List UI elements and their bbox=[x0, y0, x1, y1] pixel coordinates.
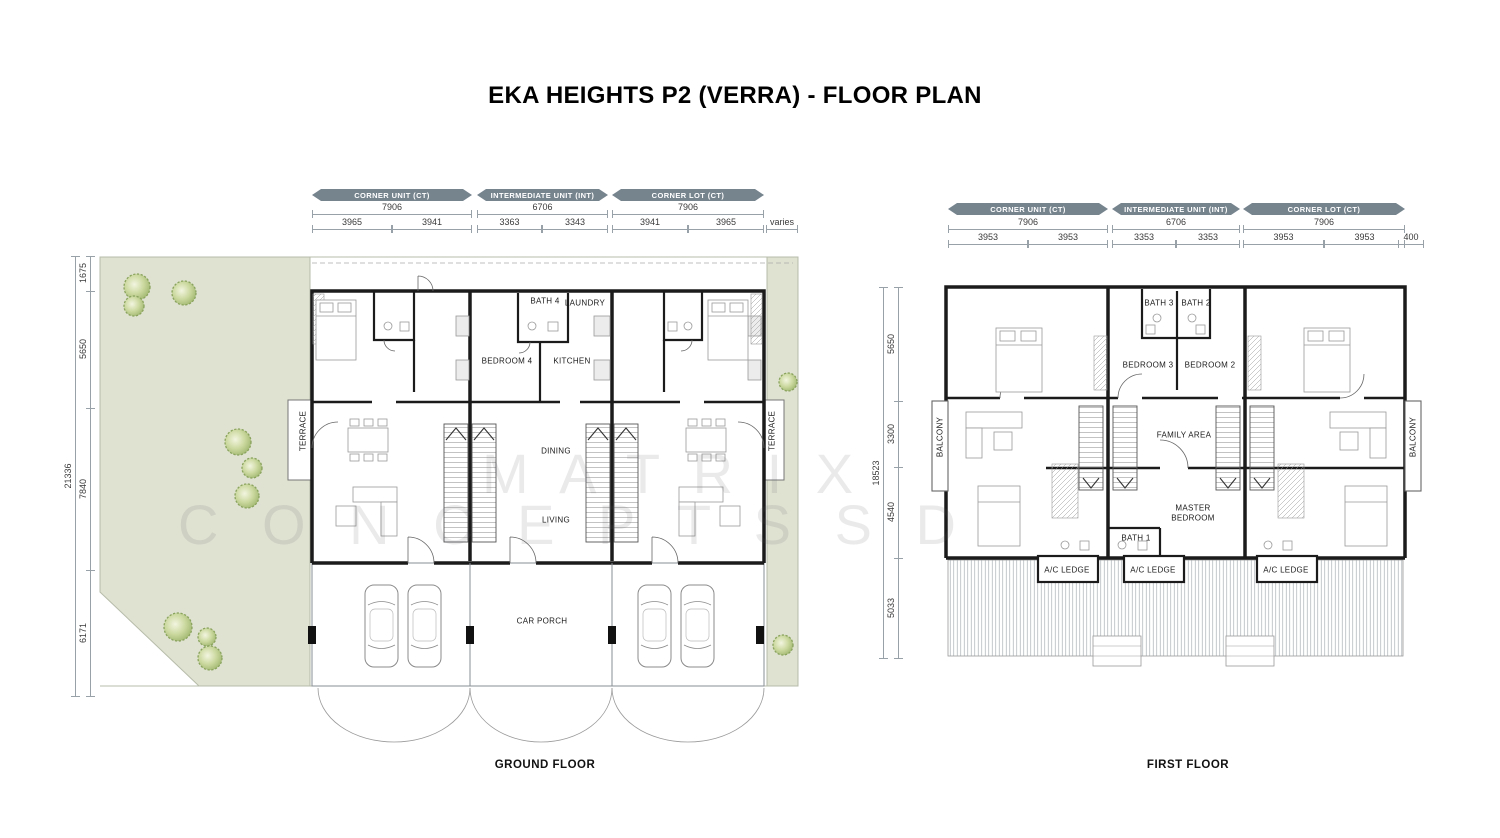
ff-dim-unit-2: 6706 bbox=[1112, 217, 1240, 230]
ff-dim-sub-2: 3953 bbox=[1028, 232, 1108, 245]
page-title: EKA HEIGHTS P2 (VERRA) - FLOOR PLAN bbox=[455, 82, 1015, 110]
room-label-dining: DINING bbox=[541, 447, 571, 456]
ff-unit-bar-intermediate-unit: INTERMEDIATE UNIT (INT) bbox=[1112, 203, 1240, 215]
gf-dim-sub-5: 3941 bbox=[612, 217, 688, 230]
gf-dim-unit-1: 7906 bbox=[312, 202, 472, 215]
ff-vdim-1: 5650 bbox=[886, 334, 896, 354]
room-label-bedroom2: BEDROOM 2 bbox=[1185, 361, 1236, 370]
watermark-line2: C O N C E P T S S D bbox=[178, 492, 970, 557]
ff-unit-bar-corner-unit: CORNER UNIT (CT) bbox=[948, 203, 1108, 215]
room-label-ac-ledge-3: A/C LEDGE bbox=[1263, 566, 1308, 575]
room-label-balcony-left: BALCONY bbox=[936, 417, 945, 457]
ff-vdim-total: 18523 bbox=[871, 460, 881, 485]
gf-dim-sub-2: 3941 bbox=[392, 217, 472, 230]
room-label-bedroom3: BEDROOM 3 bbox=[1123, 361, 1174, 370]
gate-arcs bbox=[318, 688, 764, 742]
gf-vdim-3: 7840 bbox=[78, 479, 88, 499]
room-label-terrace-right: TERRACE bbox=[768, 411, 777, 451]
gf-dim-unit-2: 6706 bbox=[477, 202, 608, 215]
ff-vdim-4: 5033 bbox=[886, 598, 896, 618]
gf-dim-sub-1: 3965 bbox=[312, 217, 392, 230]
ff-dim-sub-400: 400 bbox=[1398, 232, 1424, 245]
gf-dim-sub-varies: varies bbox=[766, 217, 798, 230]
gf-unit-bar-corner-lot: CORNER LOT (CT) bbox=[612, 189, 764, 201]
room-label-bath3: BATH 3 bbox=[1144, 299, 1173, 308]
ff-unit-bar-corner-lot: CORNER LOT (CT) bbox=[1243, 203, 1405, 215]
room-label-bath1: BATH 1 bbox=[1121, 534, 1150, 543]
ff-dim-unit-1: 7906 bbox=[948, 217, 1108, 230]
floor-plan-sheet: EKA HEIGHTS P2 (VERRA) - FLOOR PLAN bbox=[0, 0, 1500, 838]
gf-dim-sub-6: 3965 bbox=[688, 217, 764, 230]
room-label-kitchen: KITCHEN bbox=[553, 357, 590, 366]
room-label-ac-ledge-1: A/C LEDGE bbox=[1044, 566, 1089, 575]
ff-dim-sub-6: 3953 bbox=[1324, 232, 1405, 245]
room-label-living: LIVING bbox=[542, 516, 570, 525]
room-label-bath4: BATH 4 bbox=[530, 297, 559, 306]
first-floor-drawing bbox=[875, 250, 1430, 720]
gf-vdim-1: 1675 bbox=[78, 263, 88, 283]
ff-dim-sub-5: 3953 bbox=[1243, 232, 1324, 245]
room-label-ac-ledge-2: A/C LEDGE bbox=[1130, 566, 1175, 575]
gf-unit-bar-intermediate-unit: INTERMEDIATE UNIT (INT) bbox=[477, 189, 608, 201]
ff-dim-unit-3: 7906 bbox=[1243, 217, 1405, 230]
gf-vdim-total: 21336 bbox=[63, 463, 73, 488]
room-label-bedroom4: BEDROOM 4 bbox=[482, 357, 533, 366]
gf-dim-sub-3: 3363 bbox=[477, 217, 542, 230]
ff-vdim-2: 3300 bbox=[886, 424, 896, 444]
gf-vruler-inner bbox=[90, 256, 91, 697]
room-label-balcony-right: BALCONY bbox=[1409, 417, 1418, 457]
gf-dim-sub-4: 3343 bbox=[542, 217, 608, 230]
ff-dim-sub-1: 3953 bbox=[948, 232, 1028, 245]
gf-vruler-outer bbox=[75, 256, 76, 697]
ff-vruler-inner bbox=[898, 287, 899, 659]
gf-vdim-2: 5650 bbox=[78, 339, 88, 359]
gf-vdim-4: 6171 bbox=[78, 623, 88, 643]
ff-dim-sub-3: 3353 bbox=[1112, 232, 1176, 245]
room-label-bath2: BATH 2 bbox=[1181, 299, 1210, 308]
room-label-master-bedroom: MASTER BEDROOM bbox=[1162, 504, 1224, 525]
gf-dim-unit-3: 7906 bbox=[612, 202, 764, 215]
room-label-family-area: FAMILY AREA bbox=[1157, 431, 1212, 440]
room-label-car-porch: CAR PORCH bbox=[517, 617, 568, 626]
room-label-laundry: LAUNDRY bbox=[565, 299, 605, 308]
ff-vruler-outer bbox=[883, 287, 884, 659]
ff-vdim-3: 4540 bbox=[886, 502, 896, 522]
first-floor-caption: FIRST FLOOR bbox=[1147, 759, 1229, 771]
gf-unit-bar-corner-unit: CORNER UNIT (CT) bbox=[312, 189, 472, 201]
room-label-terrace-left: TERRACE bbox=[299, 411, 308, 451]
ground-floor-caption: GROUND FLOOR bbox=[495, 759, 596, 771]
ff-dim-sub-4: 3353 bbox=[1176, 232, 1240, 245]
